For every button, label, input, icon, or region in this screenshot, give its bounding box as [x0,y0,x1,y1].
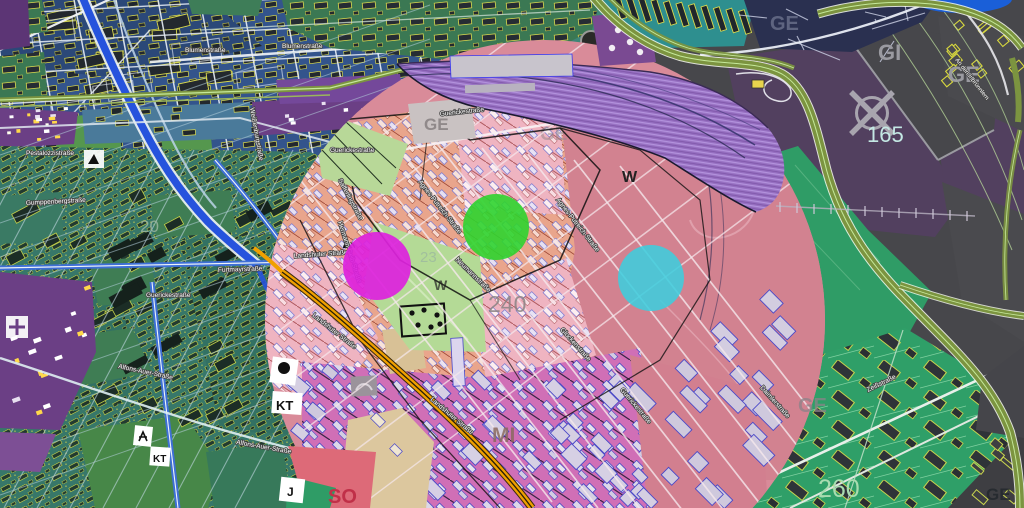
svg-text:Blumenstraße: Blumenstraße [282,43,323,50]
svg-text:Guerickestraße: Guerickestraße [146,292,191,299]
svg-text:SO: SO [328,486,357,508]
svg-text:GE: GE [770,13,799,35]
svg-text:Pestalozzistraße: Pestalozzistraße [26,150,74,157]
svg-text:GI: GI [878,40,901,65]
svg-text:KT: KT [276,398,293,413]
svg-text:240: 240 [488,291,526,317]
svg-text:20: 20 [140,217,159,236]
svg-text:GE: GE [798,395,827,417]
svg-text:J: J [287,485,294,499]
svg-text:23: 23 [420,249,437,266]
svg-text:Blumenstraße: Blumenstraße [185,47,226,54]
svg-text:MI: MI [492,424,515,447]
svg-text:Guerickestraße: Guerickestraße [330,147,375,154]
svg-text:165: 165 [867,122,904,147]
svg-text:GE: GE [986,485,1011,504]
svg-text:KT: KT [153,454,166,465]
svg-text:W: W [622,169,638,186]
svg-text:GE: GE [424,115,449,134]
svg-text:W: W [434,277,448,293]
svg-text:260: 260 [818,475,860,503]
